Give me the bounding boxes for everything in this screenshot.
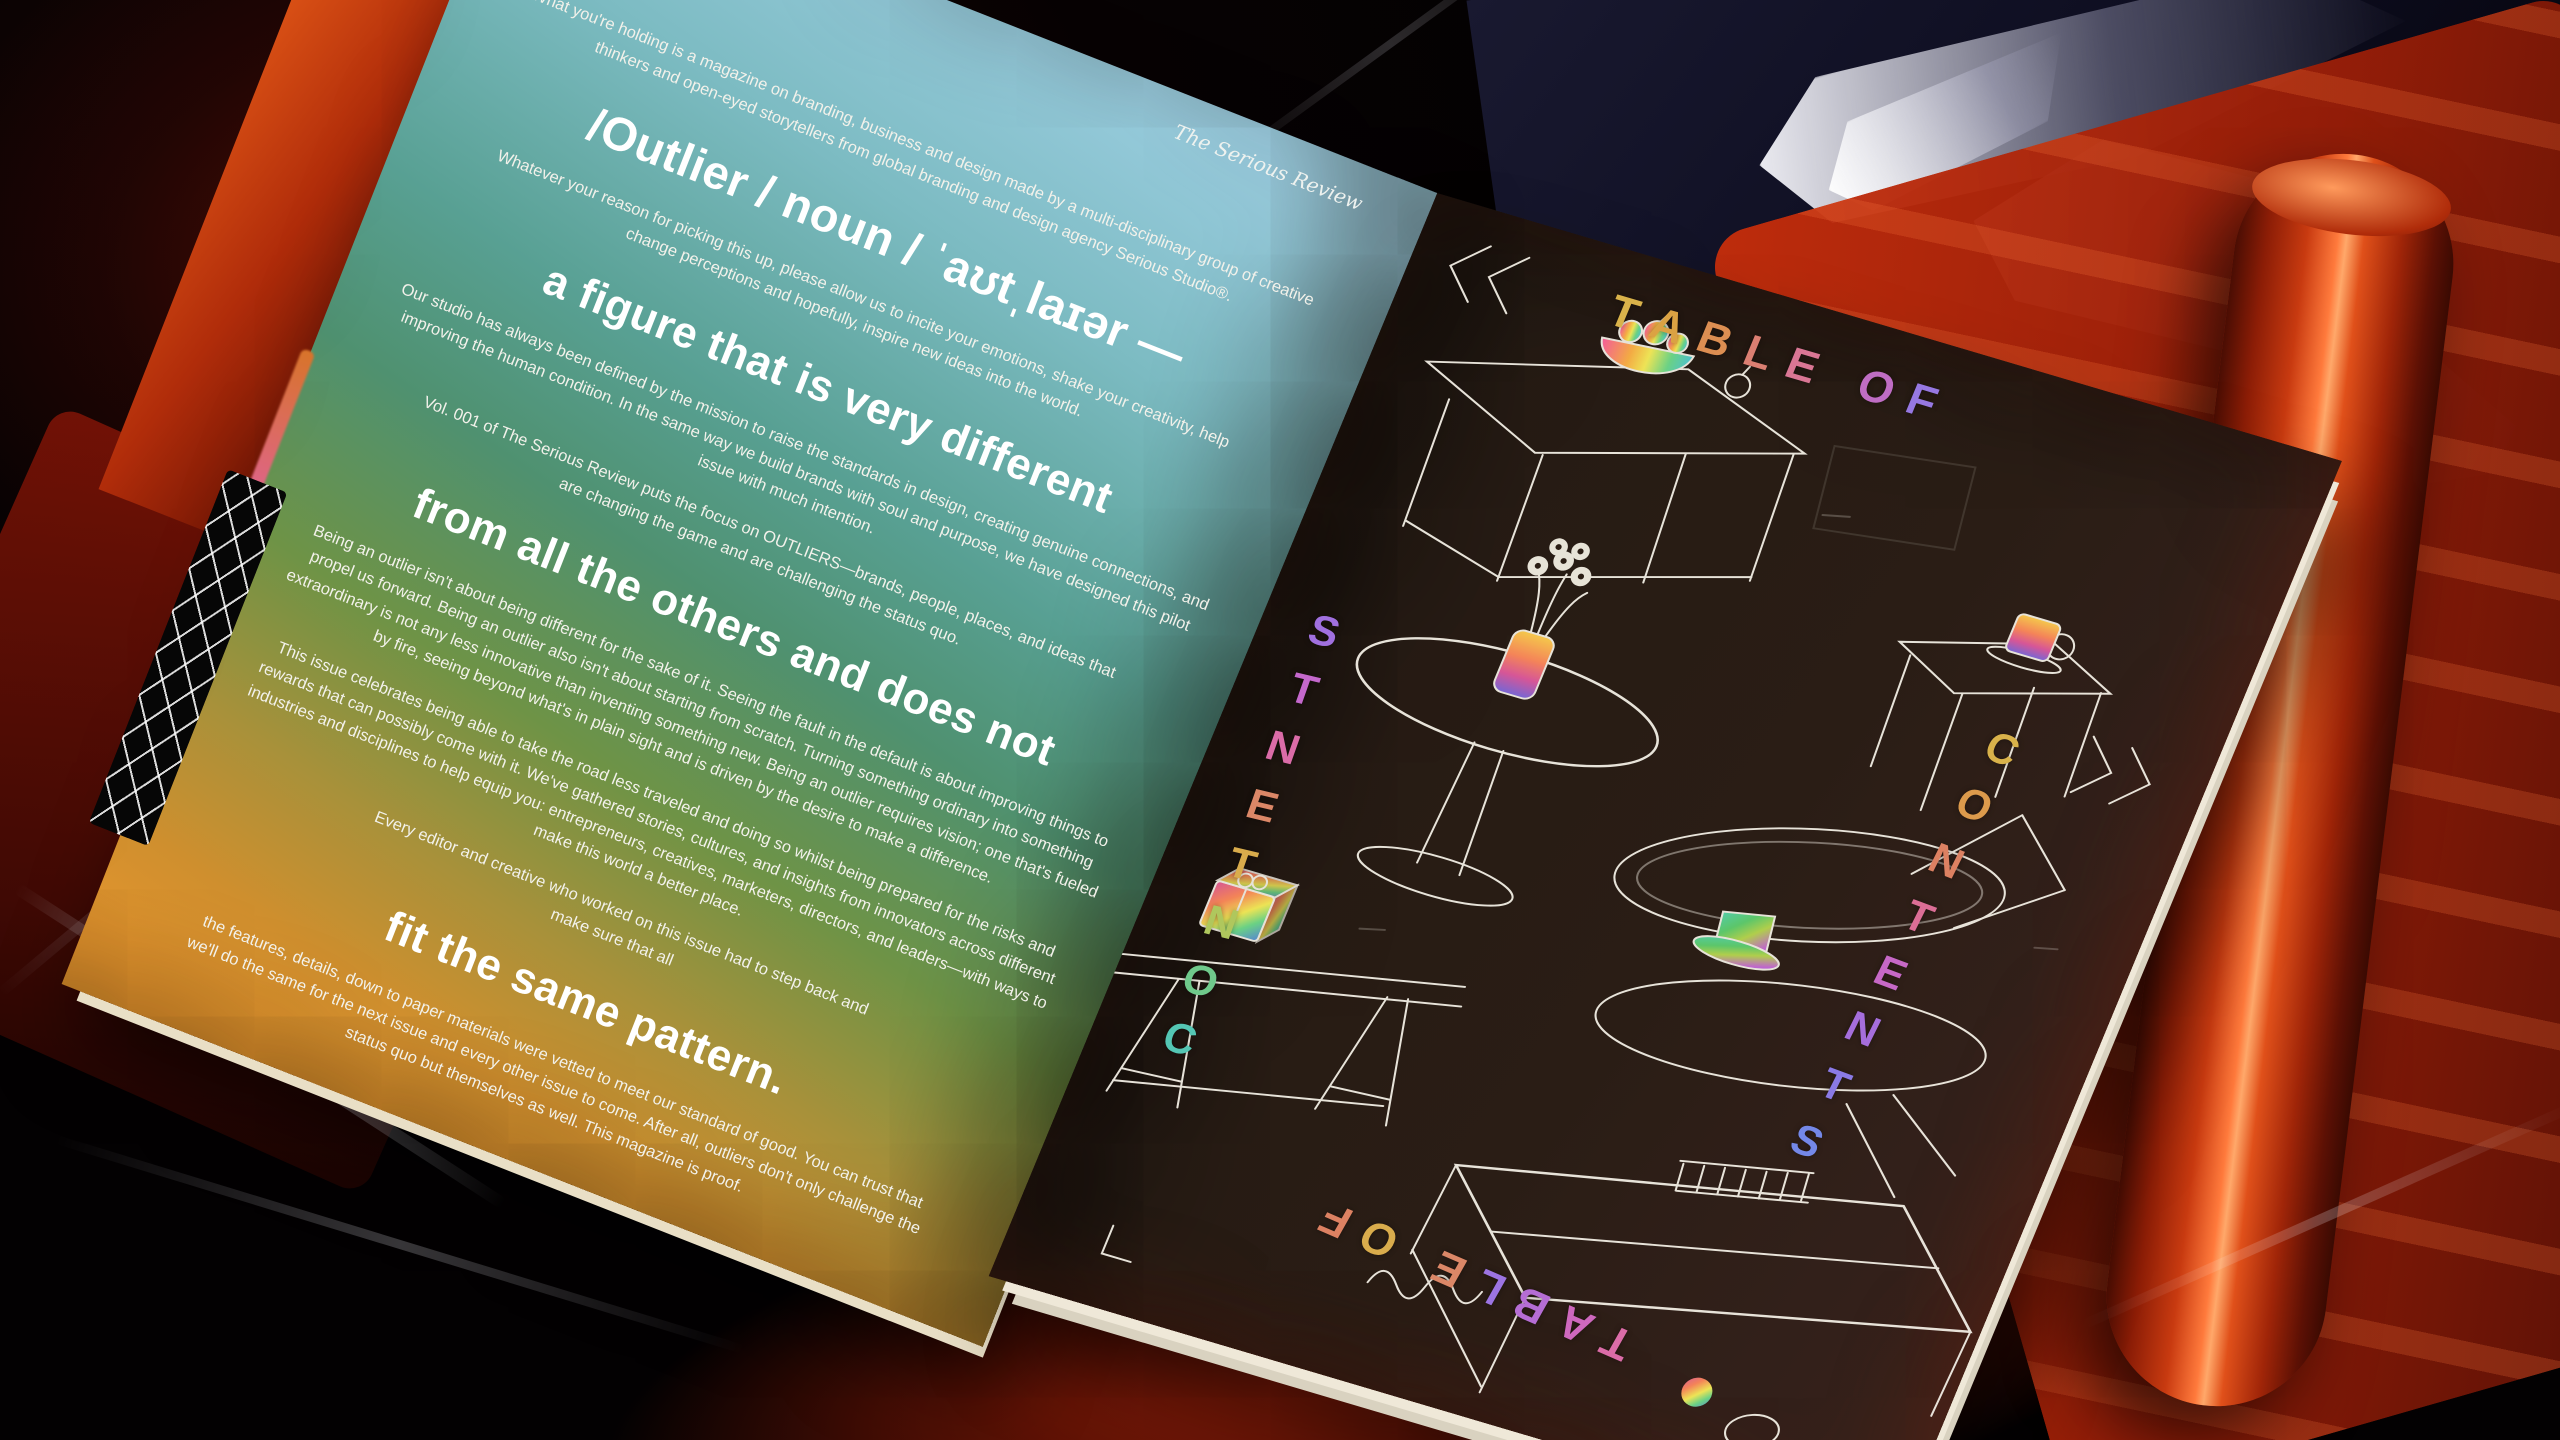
frame-letter: A [1643, 297, 1694, 354]
frame-letter: L [1736, 325, 1782, 381]
frame-letter: B [1504, 1276, 1559, 1335]
frame-letter: B [1689, 311, 1740, 368]
gradient-hat-box [1689, 898, 1796, 977]
frame-letter: E [1422, 1240, 1475, 1298]
frame-letter [1822, 350, 1854, 402]
dining-table-with-fruit-bowl [1354, 253, 1843, 648]
pedestal-table-with-flower-vase [1278, 496, 1723, 939]
running-head: The Serious Review [1170, 119, 1366, 215]
frame-letter [1396, 1229, 1433, 1280]
frame-letter: L [1464, 1258, 1515, 1315]
faint-dashes [1359, 355, 2226, 1115]
frame-letter: A [1548, 1295, 1603, 1354]
frame-letter: E [1778, 337, 1827, 394]
frame-letter: O [1850, 359, 1904, 417]
photo-scene: The Serious Review What you're holding i… [0, 0, 2560, 1440]
